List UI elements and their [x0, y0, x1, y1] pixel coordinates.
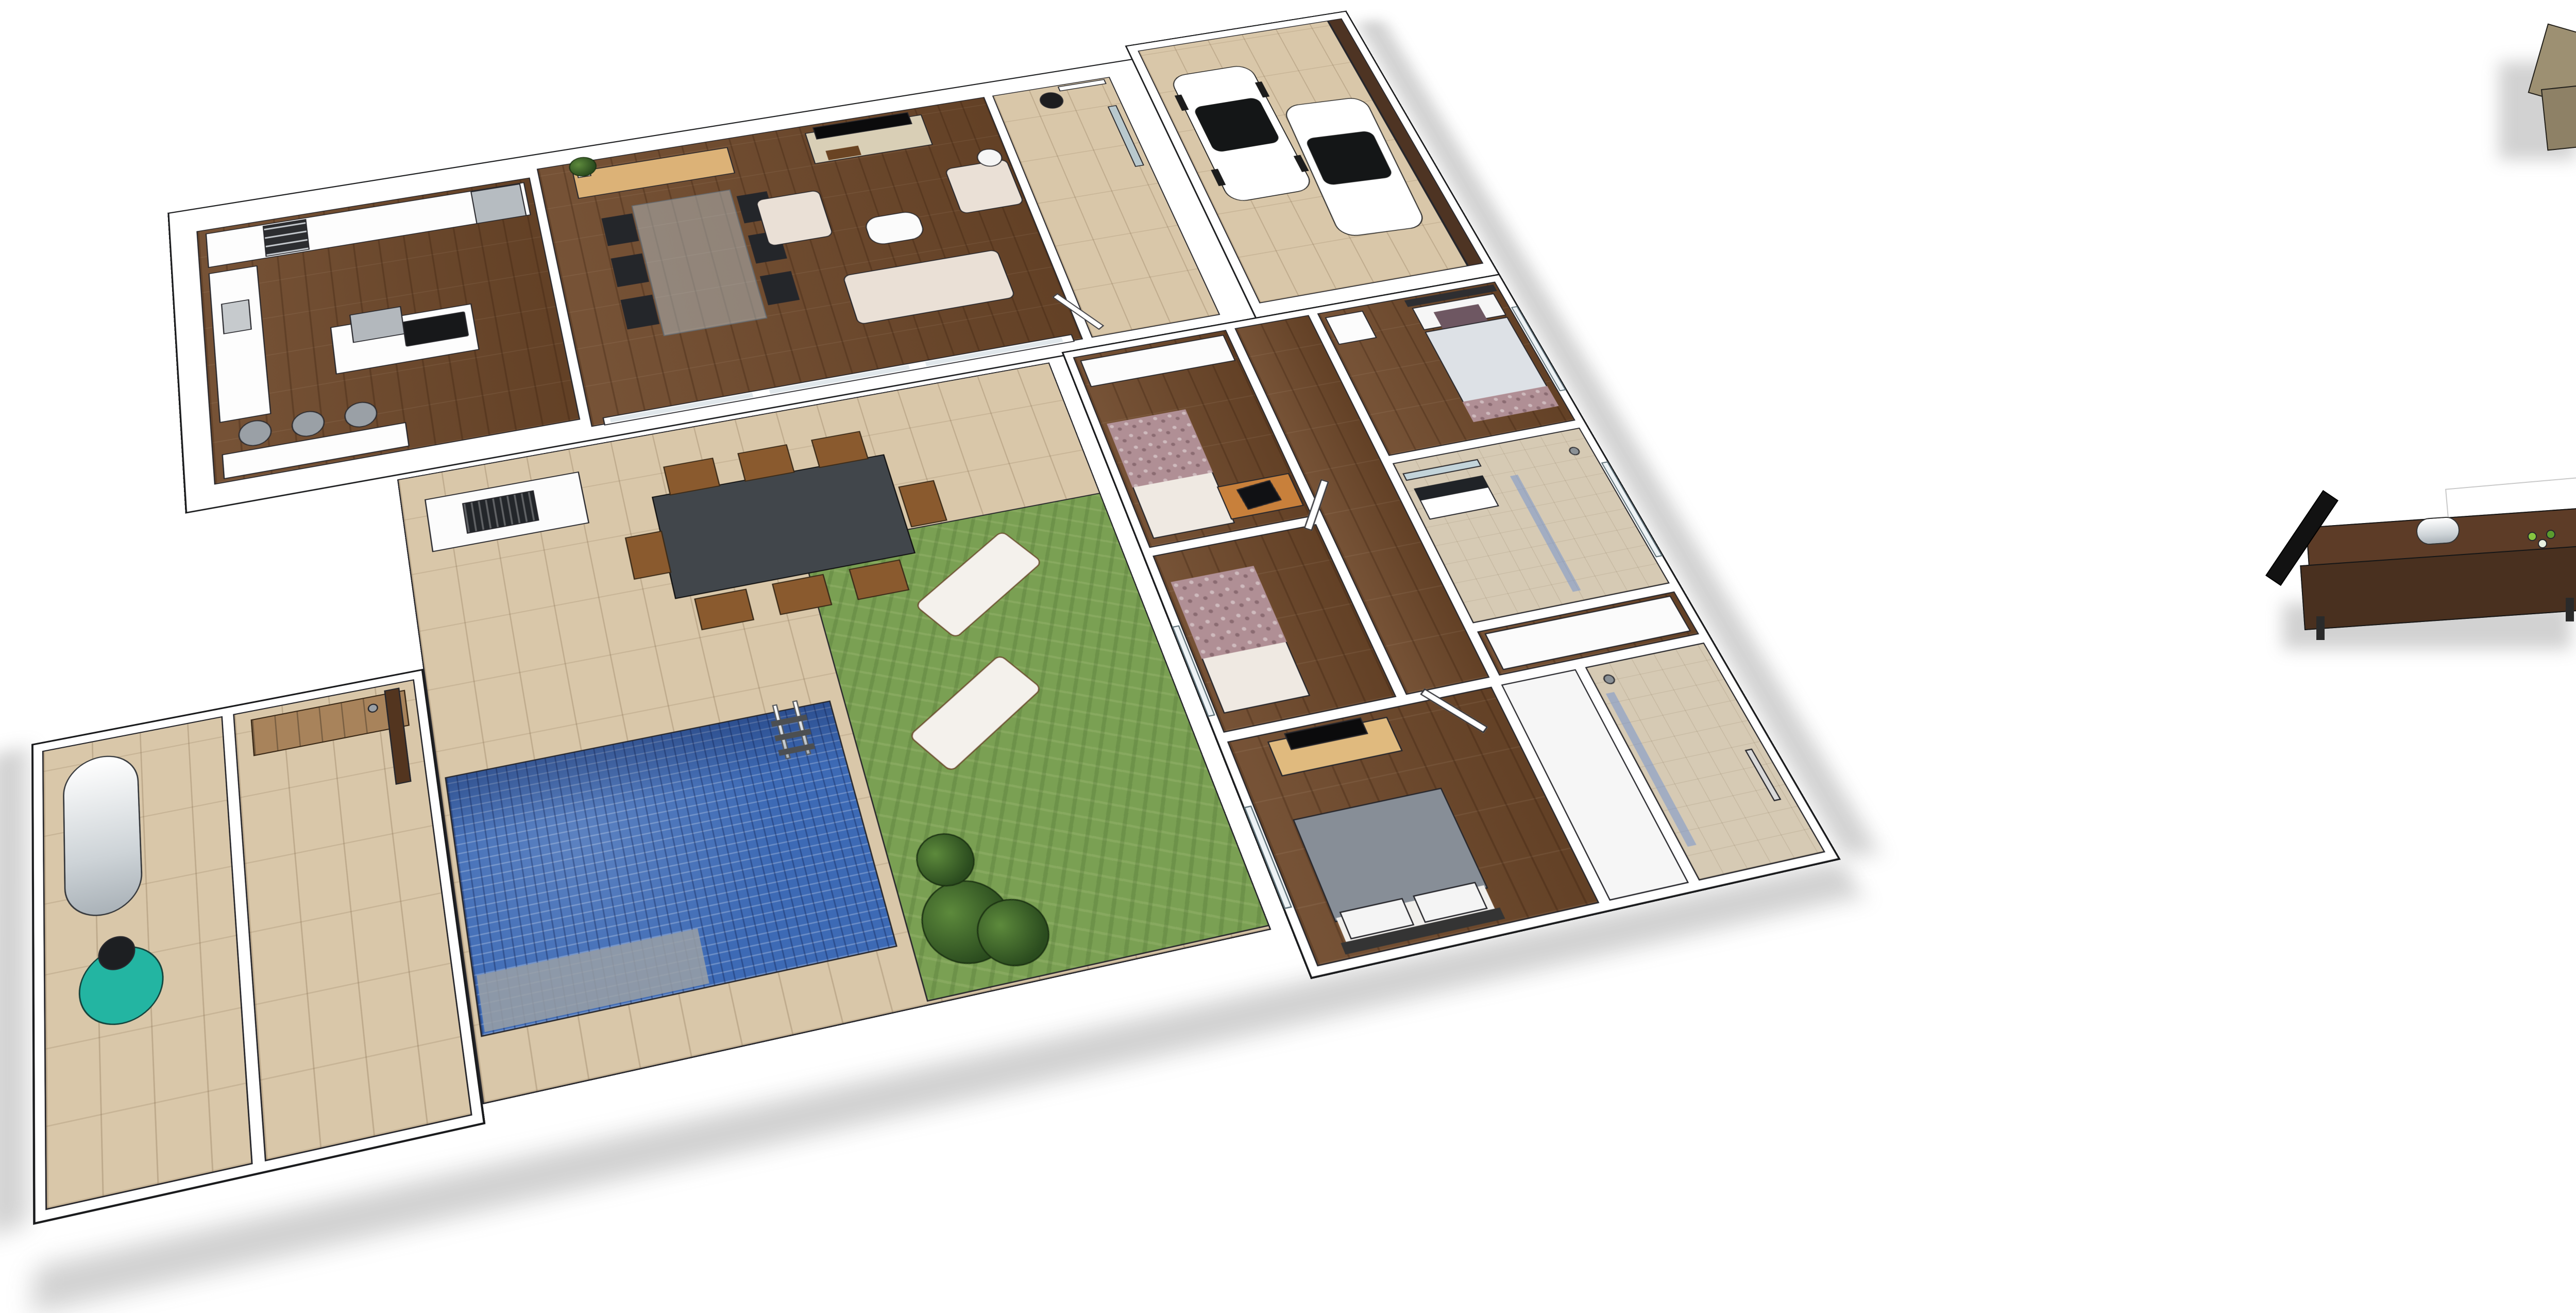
house-plan-surface	[30, 23, 1841, 1267]
detached-console-bowl	[2415, 516, 2460, 546]
water-heater	[62, 749, 143, 923]
detached-console-cup-1	[2528, 532, 2537, 541]
dining-chair-left-1	[601, 213, 639, 246]
dining-chair-left-3	[620, 295, 659, 330]
detached-white-tabletop	[2445, 468, 2576, 547]
detached-console-cup-3	[2546, 530, 2555, 539]
detached-console-leg-left	[2316, 616, 2325, 640]
detached-console-cup-2	[2538, 539, 2547, 548]
house-plan-3d	[144, 31, 1484, 1010]
floorplan-3d-viewport[interactable]	[0, 0, 2576, 1313]
detached-console-front	[2300, 546, 2576, 630]
dining-chair-left-2	[611, 254, 649, 288]
detached-armchair-shadow	[2499, 62, 2576, 160]
detached-console-black-tray	[2265, 490, 2338, 586]
detached-armchair-back	[2528, 23, 2576, 106]
kitchen-sink	[221, 299, 252, 334]
detached-console-leg-right	[2566, 598, 2574, 621]
detached-table-shadow	[2282, 603, 2571, 649]
shadow-utility-wing	[0, 747, 28, 1236]
detached-armchair-seat	[2541, 85, 2576, 151]
detached-console-top	[2306, 508, 2576, 571]
